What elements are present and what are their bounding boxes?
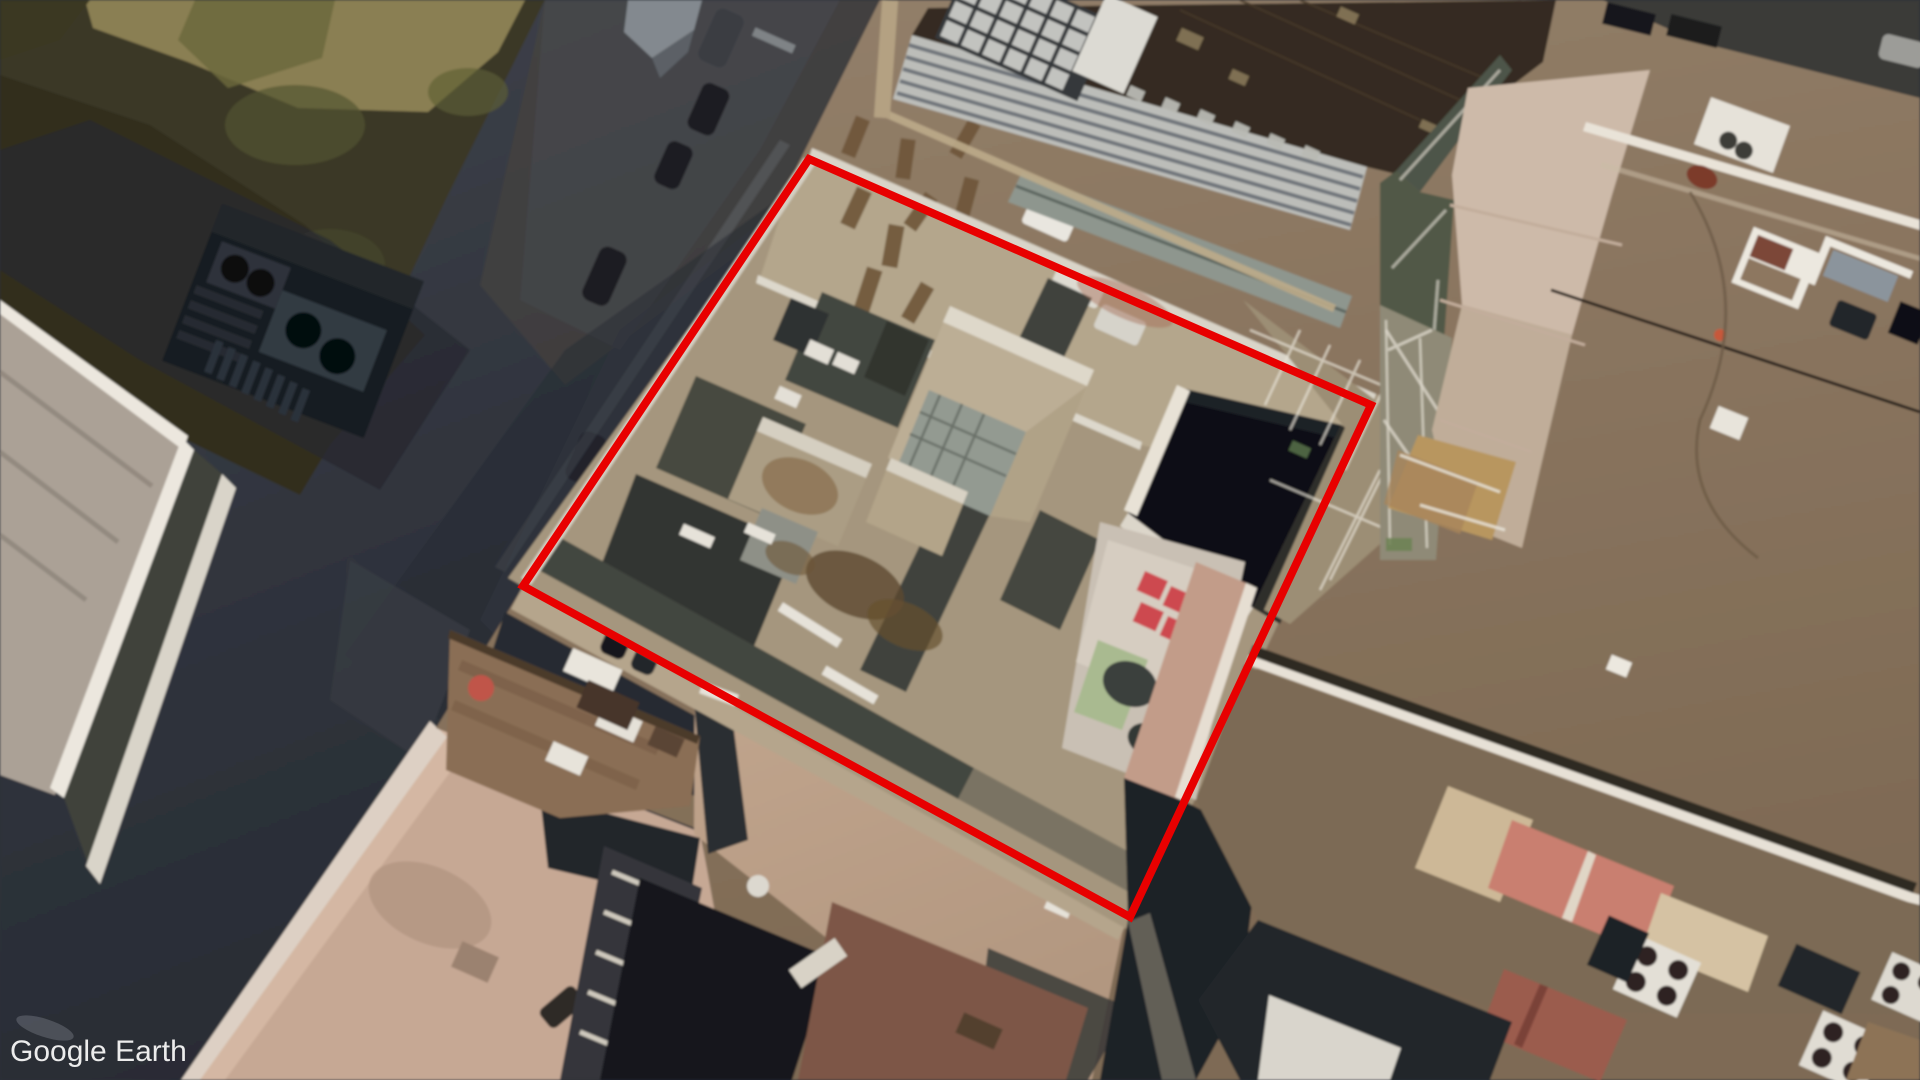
svg-text:Google Earth: Google Earth [10, 1035, 187, 1068]
